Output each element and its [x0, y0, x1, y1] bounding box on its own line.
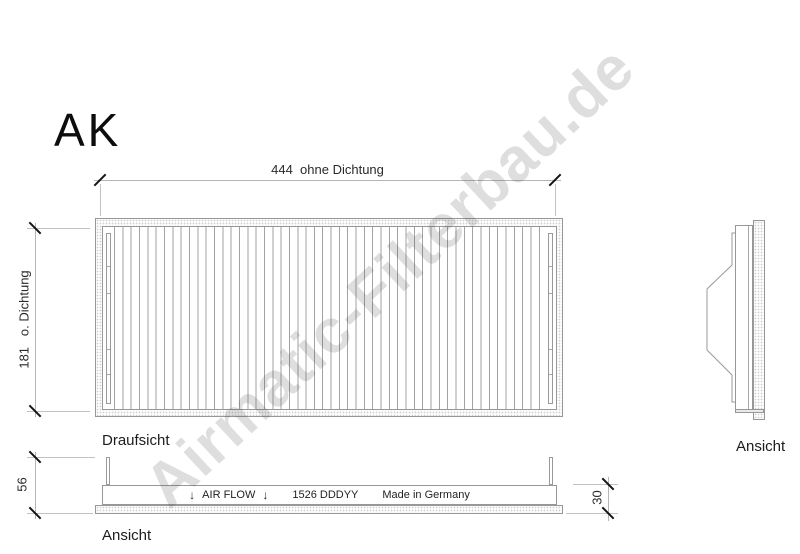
- side-view-gasket: [753, 220, 765, 420]
- front-height-dimension-line: [35, 452, 36, 519]
- height-dimension-label: 181 o. Dichtung: [17, 220, 32, 420]
- technical-drawing-sheet: Airmatic-Filterbau.de AK 444 ohne Dichtu…: [0, 0, 800, 554]
- top-view-left-endcap: [106, 233, 111, 404]
- front-view-left-pin: [106, 457, 110, 485]
- top-view-label: Draufsicht: [102, 432, 170, 449]
- side-view-bottom-lip: [735, 409, 764, 413]
- side-view-frame-innerline: [748, 226, 749, 411]
- origin-marking: Made in Germany: [382, 489, 469, 501]
- filter-pleats: [114, 227, 547, 409]
- width-extension-line-left: [100, 184, 101, 216]
- down-arrow-icon: ↓: [189, 488, 195, 502]
- top-view-right-endcap: [548, 233, 553, 404]
- width-extension-line-right: [555, 184, 556, 216]
- drawing-title: AK: [54, 103, 121, 157]
- airflow-marking: ↓ AIR FLOW ↓: [189, 488, 268, 502]
- front-view-gasket: [95, 505, 563, 514]
- part-code: 1526 DDDYY: [292, 489, 358, 501]
- side-view-profile: [700, 225, 740, 415]
- front-view-body: ↓ AIR FLOW ↓ 1526 DDDYY Made in Germany: [102, 485, 557, 505]
- height-dimension-line: [35, 223, 36, 417]
- down-arrow-icon: ↓: [262, 488, 268, 502]
- width-dimension-label: 444 ohne Dichtung: [100, 162, 555, 177]
- front-view-label: Ansicht: [102, 527, 151, 544]
- side-view-label: Ansicht: [736, 438, 785, 455]
- front-height-dimension-label: 56: [15, 455, 30, 515]
- front-view-right-pin: [549, 457, 553, 485]
- depth-dimension-label: 30: [590, 478, 605, 518]
- width-dimension-line: [94, 180, 561, 181]
